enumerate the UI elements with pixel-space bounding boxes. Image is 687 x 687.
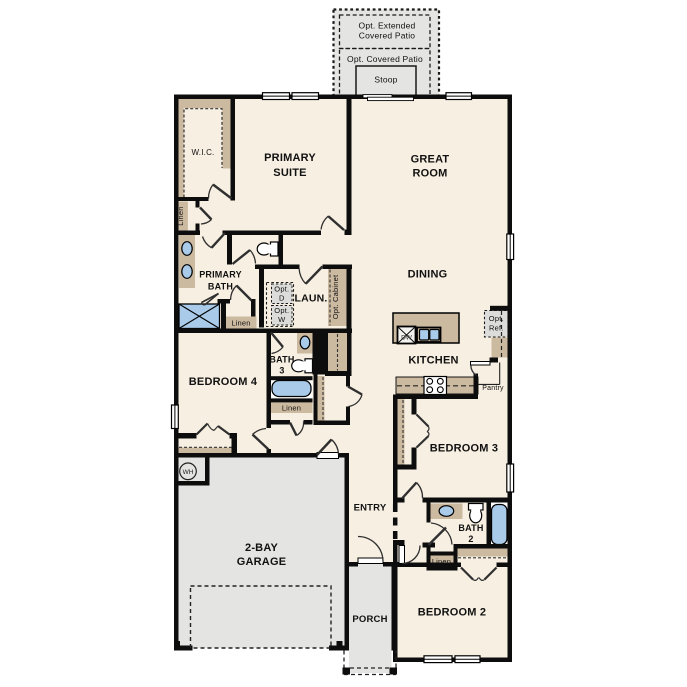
svg-text:Linen: Linen <box>231 319 250 328</box>
svg-text:Stoop: Stoop <box>374 75 397 85</box>
svg-text:BEDROOM 3: BEDROOM 3 <box>430 443 498 455</box>
svg-text:Ref.: Ref. <box>489 324 504 333</box>
svg-text:Opt.: Opt. <box>489 314 504 323</box>
svg-text:2-BAY: 2-BAY <box>245 542 278 554</box>
svg-text:Opt. Cabinet: Opt. Cabinet <box>331 274 340 319</box>
svg-text:GARAGE: GARAGE <box>237 556 286 568</box>
svg-text:Linen: Linen <box>282 404 301 413</box>
svg-text:SUITE: SUITE <box>273 167 306 179</box>
svg-text:Opt.: Opt. <box>274 306 289 315</box>
svg-text:GREAT: GREAT <box>411 154 450 166</box>
svg-text:BATH: BATH <box>458 523 483 533</box>
svg-text:W: W <box>278 315 286 324</box>
svg-text:Opt. Covered Patio: Opt. Covered Patio <box>347 54 423 64</box>
svg-text:DINING: DINING <box>408 269 448 281</box>
svg-text:Pantry: Pantry <box>482 385 504 392</box>
svg-text:BEDROOM 2: BEDROOM 2 <box>418 607 486 619</box>
svg-text:Opt.: Opt. <box>274 285 289 294</box>
svg-text:PRIMARY: PRIMARY <box>264 152 316 164</box>
svg-text:LAUN.: LAUN. <box>294 293 327 305</box>
svg-text:BATH: BATH <box>269 355 294 365</box>
svg-text:PRIMARY: PRIMARY <box>199 270 242 280</box>
svg-text:W.I.C.: W.I.C. <box>192 148 215 157</box>
svg-text:Linen: Linen <box>176 206 185 225</box>
svg-text:WH: WH <box>183 469 194 476</box>
svg-text:BATH: BATH <box>208 282 233 292</box>
svg-text:ROOM: ROOM <box>412 168 447 180</box>
svg-text:ENTRY: ENTRY <box>354 503 387 514</box>
svg-text:D: D <box>279 294 285 303</box>
svg-text:PORCH: PORCH <box>352 614 387 625</box>
svg-text:Opt. Extended: Opt. Extended <box>359 21 416 31</box>
svg-text:KITCHEN: KITCHEN <box>408 355 458 367</box>
svg-text:Linen: Linen <box>432 557 451 566</box>
svg-text:DW: DW <box>401 335 413 342</box>
svg-text:3: 3 <box>279 366 284 376</box>
svg-text:BEDROOM 4: BEDROOM 4 <box>189 376 258 388</box>
svg-text:2: 2 <box>468 534 473 544</box>
svg-text:Covered Patio: Covered Patio <box>359 31 416 41</box>
